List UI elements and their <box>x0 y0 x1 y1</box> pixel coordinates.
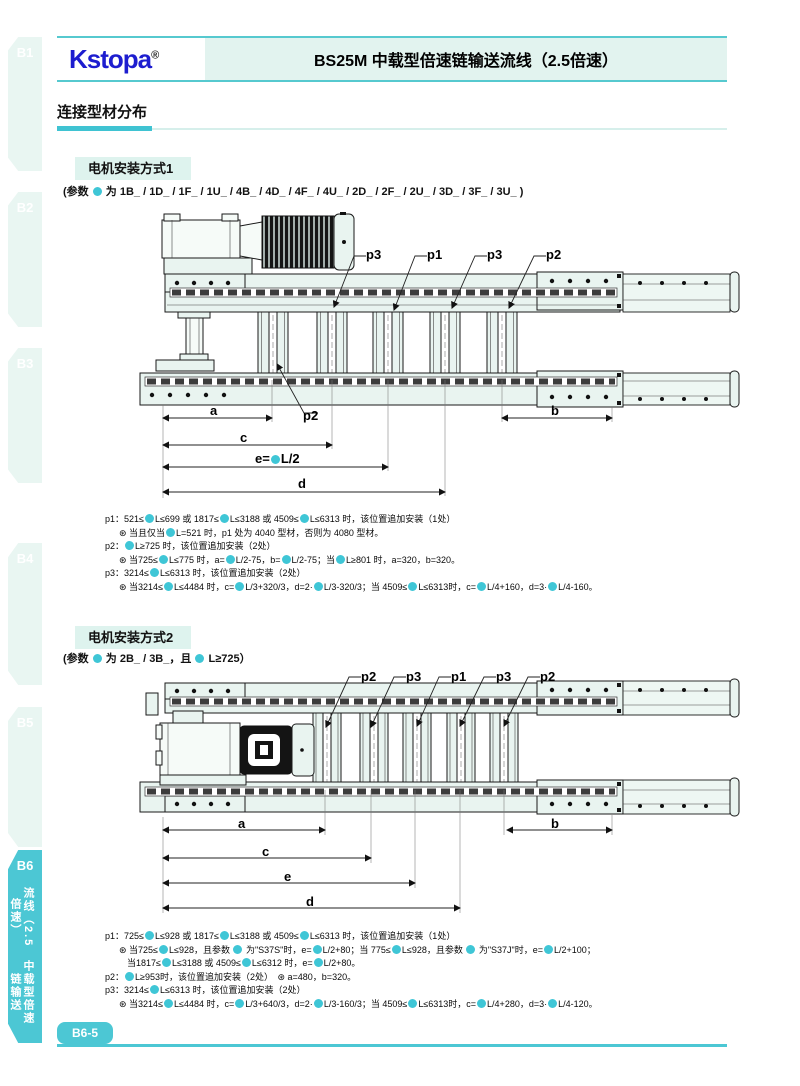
tab-vertical-line-left: 中载型倍速链输送 <box>8 954 34 1031</box>
note-line: p1：725≤L≤928 或 1817≤L≤3188 或 4509≤L≤6313… <box>105 930 598 944</box>
param-dot <box>477 582 486 591</box>
note-line: ⊛ 当3214≤L≤4484 时，c=L/3+640/3，d=2·L/3-160… <box>105 998 598 1012</box>
param-dot <box>93 654 102 663</box>
method2-params: (参数 为 2B_ / 3B_，且 L≥725） <box>63 650 251 666</box>
param-dot <box>477 999 486 1008</box>
page-title: BS25M 中载型倍速链输送流线（2.5倍速） <box>205 47 727 71</box>
method1-params: (参数 为 1B_ / 1D_ / 1F_ / 1U_ / 4B_ / 4D_ … <box>63 183 523 199</box>
callout-p2: p2 <box>546 247 561 262</box>
param-dot <box>226 555 235 564</box>
param-dot <box>145 514 154 523</box>
connecting-profiles <box>313 707 518 788</box>
note-line: p2：L≥725 时，该位置追加安装（2处） <box>105 540 598 554</box>
method1-notes: p1：521≤L≤699 或 1817≤L≤3188 或 4509≤L≤6313… <box>105 513 598 594</box>
param-dot <box>145 931 154 940</box>
param-dot <box>408 582 417 591</box>
note-line: p1：521≤L≤699 或 1817≤L≤3188 或 4509≤L≤6313… <box>105 513 598 527</box>
param-dot <box>125 541 134 550</box>
tab-label: B1 <box>8 45 42 60</box>
motor-assembly <box>162 212 354 274</box>
param-dot <box>164 999 173 1008</box>
param-dot <box>220 931 229 940</box>
callout-p3-2: p3 <box>496 669 511 684</box>
dim-label-a: a <box>210 403 217 418</box>
param-dot <box>150 568 159 577</box>
param-dot <box>282 555 291 564</box>
param-dot <box>164 582 173 591</box>
note-line: p3：3214≤L≤6313 时，该位置追加安装（2处） <box>105 984 598 998</box>
param-dot <box>300 514 309 523</box>
header-band: Kstopa® BS25M 中载型倍速链输送流线（2.5倍速） <box>57 36 727 82</box>
param-dot <box>314 999 323 1008</box>
param-dot <box>408 999 417 1008</box>
param-dot <box>235 582 244 591</box>
bottom-rail <box>140 371 739 407</box>
connecting-profiles <box>258 306 517 380</box>
param-dot <box>314 582 323 591</box>
method1-heading: 电机安装方式1 <box>75 157 191 180</box>
note-line: ⊛ 当且仅当L=521 时，p1 处为 4040 型材，否则为 4080 型材。 <box>105 527 598 541</box>
tab-label: B2 <box>8 200 42 215</box>
callout-p3-1: p3 <box>406 669 421 684</box>
dim-label-c: c <box>240 430 247 445</box>
tab-vertical-line-right: 流线（2.5倍速） <box>8 881 34 954</box>
sidebar-tab-b4: B4 <box>8 543 42 685</box>
sidebar-tab-b1: B1 <box>8 37 42 171</box>
top-rail <box>165 272 739 312</box>
param-dot <box>336 555 345 564</box>
param-dot <box>314 958 323 967</box>
param-dot <box>300 931 309 940</box>
method2-notes: p1：725≤L≤928 或 1817≤L≤3188 或 4509≤L≤6313… <box>105 930 598 1011</box>
drawing-method1 <box>140 200 750 510</box>
sidebar-tab-b2: B2 <box>8 192 42 327</box>
callout-p2-2: p2 <box>540 669 555 684</box>
dim-label-d: d <box>306 894 314 909</box>
note-line: ⊛ 当725≤L≤928，且参数 为"S37S"时，e=L/2+80；当 775… <box>105 944 598 958</box>
param-dot <box>235 999 244 1008</box>
section-underline-accent <box>57 126 152 131</box>
section-title: 连接型材分布 <box>57 101 147 122</box>
callout-p1: p1 <box>427 247 442 262</box>
tab-label: B3 <box>8 356 42 371</box>
callout-p2-below: p2 <box>303 408 318 423</box>
param-dot <box>93 187 102 196</box>
callout-p2-1: p2 <box>361 669 376 684</box>
brand-logo-text: Kstopa® <box>69 44 159 75</box>
dim-label-c: c <box>262 844 269 859</box>
drawing-method2 <box>140 665 750 925</box>
sidebar-tab-b6-active: B6 流线（2.5倍速） 中载型倍速链输送 <box>8 850 42 1043</box>
param-dot <box>195 654 204 663</box>
dim-label-e: e <box>284 869 291 884</box>
param-dot <box>159 945 168 954</box>
dim-label-a: a <box>238 816 245 831</box>
param-dot <box>544 945 553 954</box>
callout-p3-1: p3 <box>366 247 381 262</box>
page-number-tag: B6-5 <box>57 1022 113 1044</box>
dim-label-b: b <box>551 816 559 831</box>
note-line: ⊛ 当3214≤L≤4484 时，c=L/3+320/3，d=2·L/3-320… <box>105 581 598 595</box>
dim-label-d: d <box>298 476 306 491</box>
param-dot <box>466 945 475 954</box>
brand-logo: Kstopa® <box>57 38 205 80</box>
callout-p1: p1 <box>451 669 466 684</box>
param-dot <box>159 555 168 564</box>
method2-heading: 电机安装方式2 <box>75 626 191 649</box>
param-dot <box>271 455 280 464</box>
sidebar-tab-b3: B3 <box>8 348 42 483</box>
tab-label: B4 <box>8 551 42 566</box>
note-line: 当1817≤L≤3188 或 4509≤L≤6312 时，e=L/2+80。 <box>105 957 598 971</box>
param-dot <box>548 999 557 1008</box>
registered-mark: ® <box>151 49 159 61</box>
param-dot <box>125 972 134 981</box>
param-dot <box>150 985 159 994</box>
floor-stand <box>156 312 214 371</box>
note-line: p3：3214≤L≤6313 时，该位置追加安装（2处） <box>105 567 598 581</box>
catalog-page: B1 B2 B3 B4 B5 B6 流线（2.5倍速） 中载型倍速链输送 Kst… <box>0 0 800 1086</box>
param-dot <box>233 945 242 954</box>
dim-label-b: b <box>551 403 559 418</box>
section-underline-light <box>57 128 727 130</box>
callout-p3-2: p3 <box>487 247 502 262</box>
dim-label-e: e=L/2 <box>255 451 300 466</box>
param-dot <box>242 958 251 967</box>
sidebar-tab-b5: B5 <box>8 707 42 847</box>
param-dot <box>392 945 401 954</box>
footer-rule <box>57 1044 727 1047</box>
note-line: p2：L≥953时，该位置追加安装（2处） ⊛ a=480，b=320。 <box>105 971 598 985</box>
param-dot <box>548 582 557 591</box>
param-dot <box>162 958 171 967</box>
param-dot <box>166 528 175 537</box>
param-dot <box>220 514 229 523</box>
top-rail <box>165 679 739 717</box>
tab-label: B5 <box>8 715 42 730</box>
tab-label: B6 <box>8 858 42 873</box>
tab-vertical-text: 流线（2.5倍速） 中载型倍速链输送 <box>8 881 34 1031</box>
param-dot <box>313 945 322 954</box>
note-line: ⊛ 当725≤L≤775 时，a=L/2-75，b=L/2-75；当L≥801 … <box>105 554 598 568</box>
